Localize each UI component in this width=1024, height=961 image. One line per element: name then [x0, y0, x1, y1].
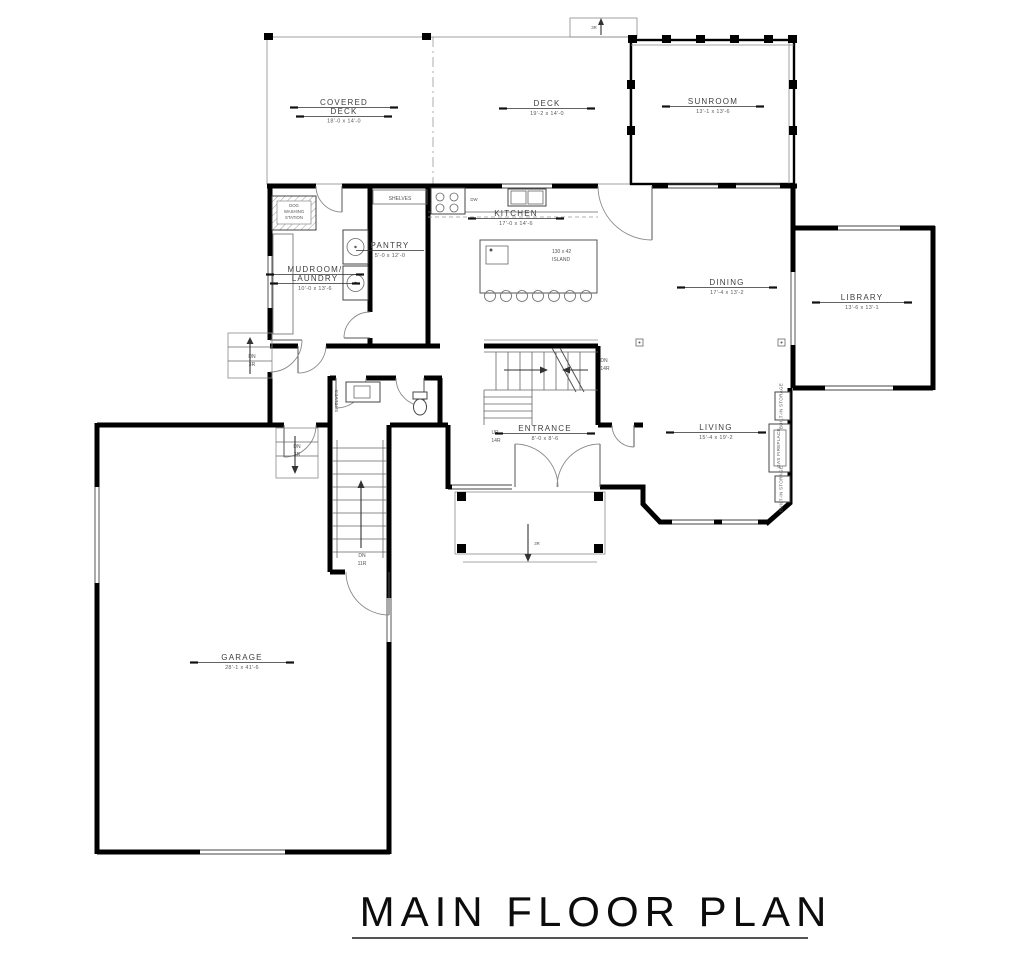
stoop-riser-label: 3R	[591, 25, 597, 30]
svg-text:18'-0 x 14'-0: 18'-0 x 14'-0	[327, 119, 361, 125]
svg-text:SUNROOM: SUNROOM	[688, 97, 738, 106]
stair-dn-label: DN	[600, 358, 608, 364]
svg-text:10'-0 x 13'-6: 10'-0 x 13'-6	[298, 286, 332, 292]
steps-3r-label: 3R	[294, 452, 301, 458]
dog-wash-label-3: STATION	[285, 215, 303, 220]
svg-text:5'-0 x 12'-0: 5'-0 x 12'-0	[375, 253, 405, 259]
svg-text:DINING: DINING	[709, 278, 744, 287]
svg-text:LIVING: LIVING	[699, 423, 732, 432]
range	[431, 188, 465, 214]
island-size-label: 130 x 42	[552, 249, 571, 255]
stair-14r-label: 14R	[491, 438, 501, 444]
steps-dn-label: DN	[248, 354, 256, 360]
dishwasher-label: DW	[470, 197, 478, 202]
svg-text:13'-1 x 13'-6: 13'-1 x 13'-6	[696, 109, 730, 115]
porch-riser-label: 3R	[534, 541, 540, 546]
svg-text:28'-1 x 41'-6: 28'-1 x 41'-6	[225, 665, 259, 671]
dog-wash-label-2: WASHING	[284, 209, 305, 214]
kitchen-sink	[508, 189, 546, 206]
builtin-storage-label: BUILT-IN STORAGE	[779, 383, 784, 429]
svg-text:GARAGE: GARAGE	[221, 653, 262, 662]
svg-text:PANTRY: PANTRY	[371, 241, 410, 250]
svg-text:DECK: DECK	[533, 99, 560, 108]
powder-shelves-label: SHELVES	[334, 390, 339, 413]
toilet	[414, 399, 427, 415]
builtin-storage-label: BUILT-IN STORAGE	[779, 466, 784, 512]
stair-dn-label: DN	[358, 553, 366, 559]
svg-text:DECK: DECK	[330, 107, 357, 116]
gas-fireplace-label: GAS FIREPLACE	[776, 428, 781, 468]
svg-text:15'-4 x 19'-2: 15'-4 x 19'-2	[699, 435, 733, 441]
svg-text:LAUNDRY: LAUNDRY	[292, 274, 339, 283]
svg-text:ENTRANCE: ENTRANCE	[518, 424, 572, 433]
svg-text:17'-0 x 14'-6: 17'-0 x 14'-6	[499, 221, 533, 227]
svg-text:8'-0 x 8'-6: 8'-0 x 8'-6	[531, 436, 558, 442]
svg-text:LIBRARY: LIBRARY	[841, 293, 884, 302]
stair-14r-label: 14R	[600, 366, 610, 372]
toilet-tank	[413, 392, 427, 399]
svg-text:KITCHEN: KITCHEN	[494, 209, 538, 218]
pantry-shelves-label: SHELVES	[389, 196, 412, 202]
svg-text:MUDROOM/: MUDROOM/	[288, 265, 343, 274]
svg-text:COVERED: COVERED	[320, 98, 368, 107]
steps-dn-label: DN	[293, 444, 301, 450]
dog-washing-station: DOG WASHING STATION	[272, 196, 316, 230]
svg-text:19'-2 x 14'-0: 19'-2 x 14'-0	[530, 111, 564, 117]
island-label: ISLAND	[552, 257, 570, 263]
paper-background	[0, 0, 1024, 961]
svg-text:13'-6 x 13'-1: 13'-6 x 13'-1	[845, 305, 879, 311]
floor-plan-canvas: 3R	[0, 0, 1024, 961]
stair-11r-label: 11R	[358, 561, 367, 567]
svg-text:17'-4 x 13'-2: 17'-4 x 13'-2	[710, 290, 744, 296]
dog-wash-label-1: DOG	[289, 203, 299, 208]
page-title: MAIN FLOOR PLAN	[360, 888, 833, 935]
vanity	[346, 382, 380, 402]
steps-3r-label: 3R	[249, 362, 256, 368]
drawing-title: MAIN FLOOR PLAN	[352, 888, 832, 938]
